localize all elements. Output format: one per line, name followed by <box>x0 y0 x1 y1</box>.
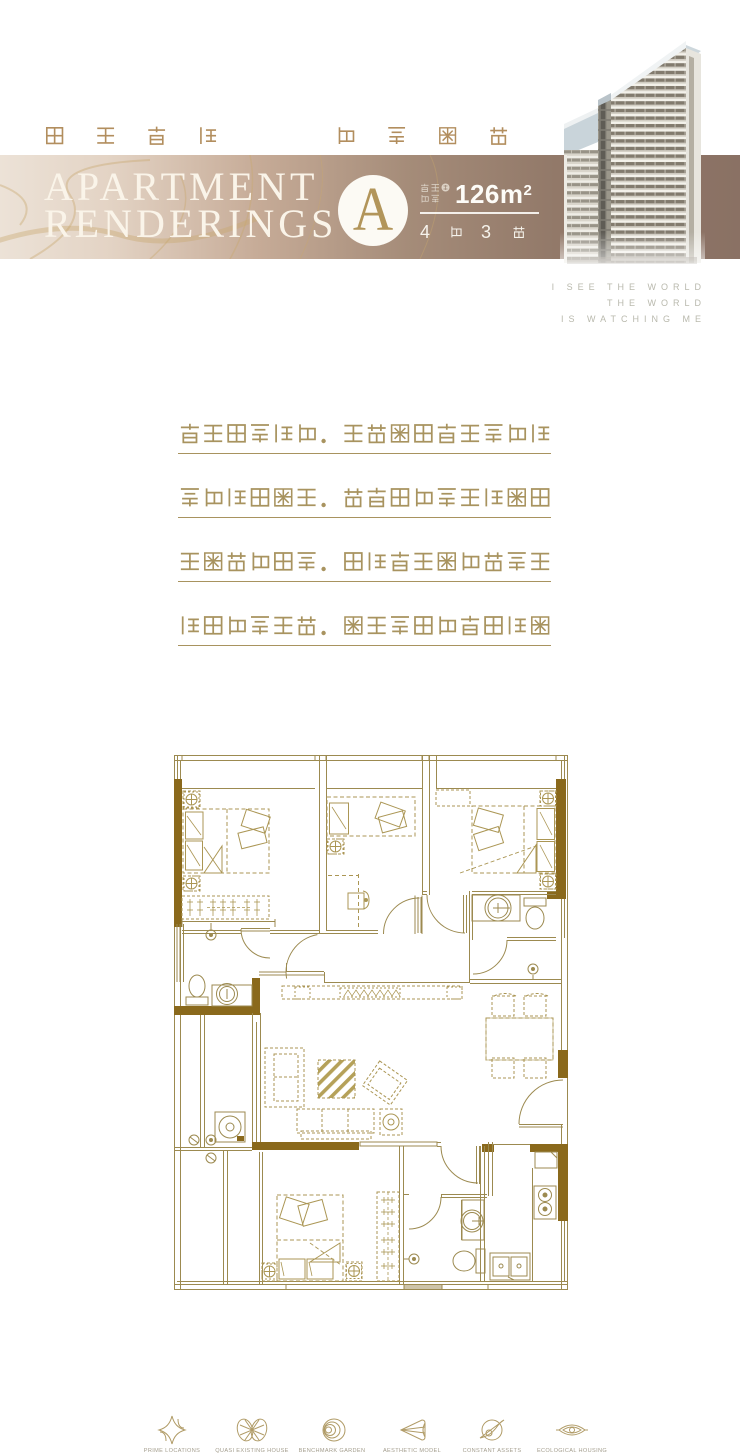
svg-text:PRIME LOCATIONS: PRIME LOCATIONS <box>144 1448 200 1454</box>
svg-text:CONSTANT ASSETS: CONSTANT ASSETS <box>463 1448 522 1454</box>
svg-text:AESTHETIC MODEL: AESTHETIC MODEL <box>383 1448 441 1454</box>
svg-text:QUASI EXISTING HOUSE: QUASI EXISTING HOUSE <box>215 1448 289 1454</box>
svg-text:ECOLOGICAL HOUSING: ECOLOGICAL HOUSING <box>537 1448 607 1454</box>
svg-text:BENCHMARK GARDEN: BENCHMARK GARDEN <box>299 1448 366 1454</box>
